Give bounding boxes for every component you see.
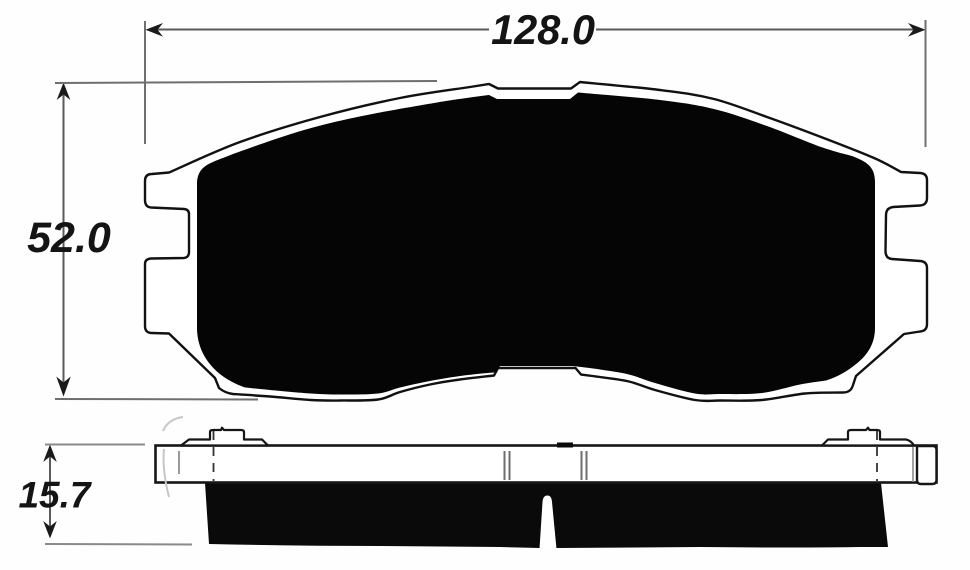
svg-text:15.7: 15.7 <box>18 475 92 516</box>
svg-text:52.0: 52.0 <box>27 214 111 262</box>
svg-text:128.0: 128.0 <box>491 6 595 53</box>
